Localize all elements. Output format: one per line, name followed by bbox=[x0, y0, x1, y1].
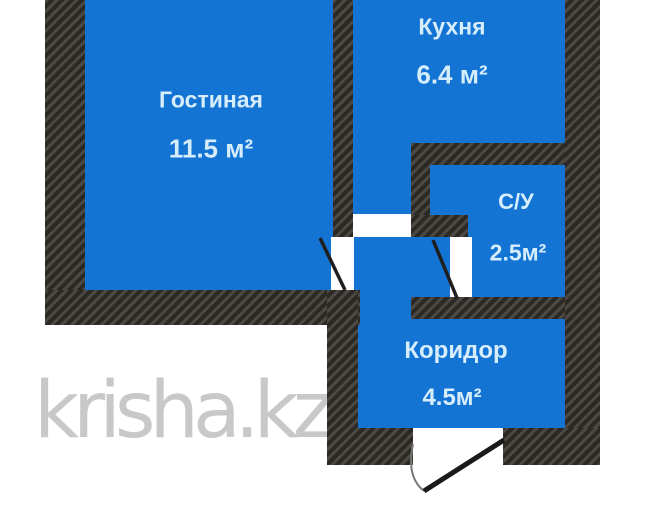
wall-living-bottom bbox=[45, 290, 360, 325]
room-corridor-fill-pocket bbox=[410, 237, 450, 300]
room-bathroom-area: 2.5м² bbox=[490, 240, 547, 267]
room-bathroom-name: С/У bbox=[498, 189, 534, 215]
watermark-logo: krisha.kz bbox=[34, 366, 328, 456]
wall-right bbox=[565, 0, 600, 465]
wall-kitchen-bottom bbox=[411, 143, 567, 165]
room-living-area: 11.5 м² bbox=[169, 134, 253, 165]
wall-bathroom-stub bbox=[411, 215, 468, 237]
room-corridor-area: 4.5м² bbox=[422, 384, 481, 412]
kitchen-passage-opening bbox=[353, 214, 411, 237]
living-door-opening bbox=[331, 237, 353, 290]
floorplan-canvas: krisha.kz Гостиная 11.5 м² Кухня 6.4 м² … bbox=[0, 0, 659, 525]
room-living-name: Гостиная bbox=[159, 87, 263, 114]
room-kitchen-area: 6.4 м² bbox=[416, 60, 487, 91]
entrance-door-opening bbox=[413, 428, 503, 465]
wall-left bbox=[45, 0, 85, 325]
bathroom-door-opening bbox=[450, 237, 472, 297]
wall-bathroom-bottom bbox=[411, 297, 567, 319]
room-kitchen-fill-lobe bbox=[351, 0, 413, 220]
room-corridor-name: Коридор bbox=[404, 337, 507, 365]
room-corridor-fill-main bbox=[354, 316, 567, 430]
room-kitchen-name: Кухня bbox=[418, 14, 485, 41]
